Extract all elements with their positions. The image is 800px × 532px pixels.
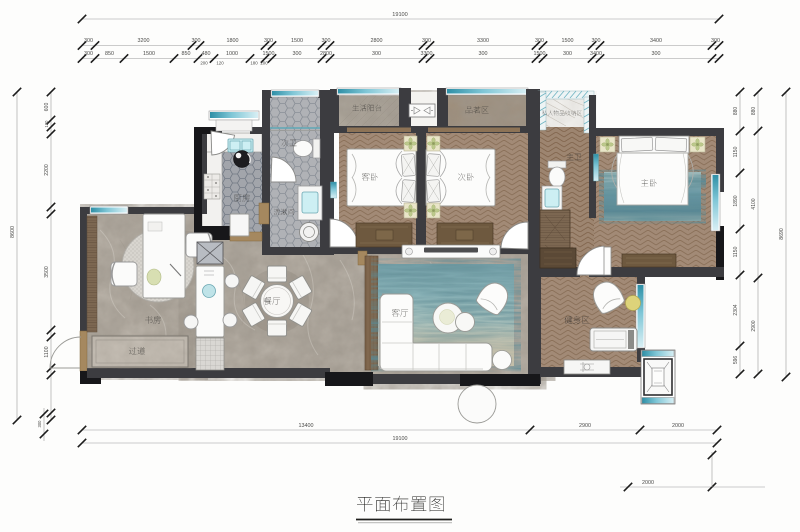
svg-text:180: 180 [44,120,49,128]
svg-text:8600: 8600 [10,226,16,238]
svg-text:300: 300 [293,51,302,57]
svg-text:3400: 3400 [590,51,602,57]
svg-text:1500: 1500 [263,51,275,57]
svg-text:300: 300 [37,420,42,428]
svg-text:300: 300 [84,51,93,57]
svg-text:300: 300 [322,38,331,44]
svg-text:300: 300 [479,51,488,57]
svg-text:3300: 3300 [477,38,489,44]
svg-text:2800: 2800 [320,51,332,57]
svg-text:1500: 1500 [143,51,155,57]
svg-text:3200: 3200 [138,38,150,44]
svg-text:3300: 3300 [421,51,433,57]
svg-text:300: 300 [422,38,431,44]
svg-text:120: 120 [216,61,224,66]
svg-text:2000: 2000 [642,480,654,486]
svg-text:180: 180 [250,61,258,66]
svg-text:300: 300 [711,38,720,44]
svg-text:1890: 1890 [733,195,739,206]
svg-text:1500: 1500 [291,38,303,44]
svg-text:880: 880 [751,107,757,116]
svg-text:19100: 19100 [392,12,408,18]
svg-text:300: 300 [192,38,201,44]
svg-text:1800: 1800 [227,38,239,44]
svg-text:3500: 3500 [44,266,50,278]
svg-text:3400: 3400 [650,38,662,44]
svg-text:2900: 2900 [751,320,757,331]
svg-text:1500: 1500 [562,38,574,44]
svg-text:300: 300 [652,51,661,57]
svg-text:300: 300 [563,51,572,57]
svg-text:300: 300 [84,38,93,44]
svg-text:4100: 4100 [751,198,757,209]
svg-text:19100: 19100 [393,436,408,442]
svg-text:1500: 1500 [534,51,546,57]
svg-text:300: 300 [372,51,381,57]
svg-text:2000: 2000 [672,423,684,429]
svg-text:200: 200 [200,61,208,66]
svg-text:850: 850 [182,51,191,57]
svg-text:1150: 1150 [733,146,739,157]
svg-text:2200: 2200 [44,164,50,176]
svg-text:2800: 2800 [371,38,383,44]
svg-text:600: 600 [44,103,50,112]
svg-text:480: 480 [202,51,211,57]
svg-text:200: 200 [260,61,268,66]
svg-text:2900: 2900 [579,423,591,429]
svg-text:13400: 13400 [299,423,314,429]
svg-text:8690: 8690 [779,228,785,240]
svg-text:880: 880 [733,107,739,116]
svg-text:850: 850 [105,51,114,57]
svg-text:300: 300 [592,38,601,44]
svg-text:300: 300 [264,38,273,44]
svg-text:2304: 2304 [733,304,739,315]
svg-text:596: 596 [733,356,739,365]
svg-text:1150: 1150 [733,246,739,257]
svg-text:1100: 1100 [44,346,50,357]
svg-text:300: 300 [535,38,544,44]
svg-text:1000: 1000 [226,51,238,57]
